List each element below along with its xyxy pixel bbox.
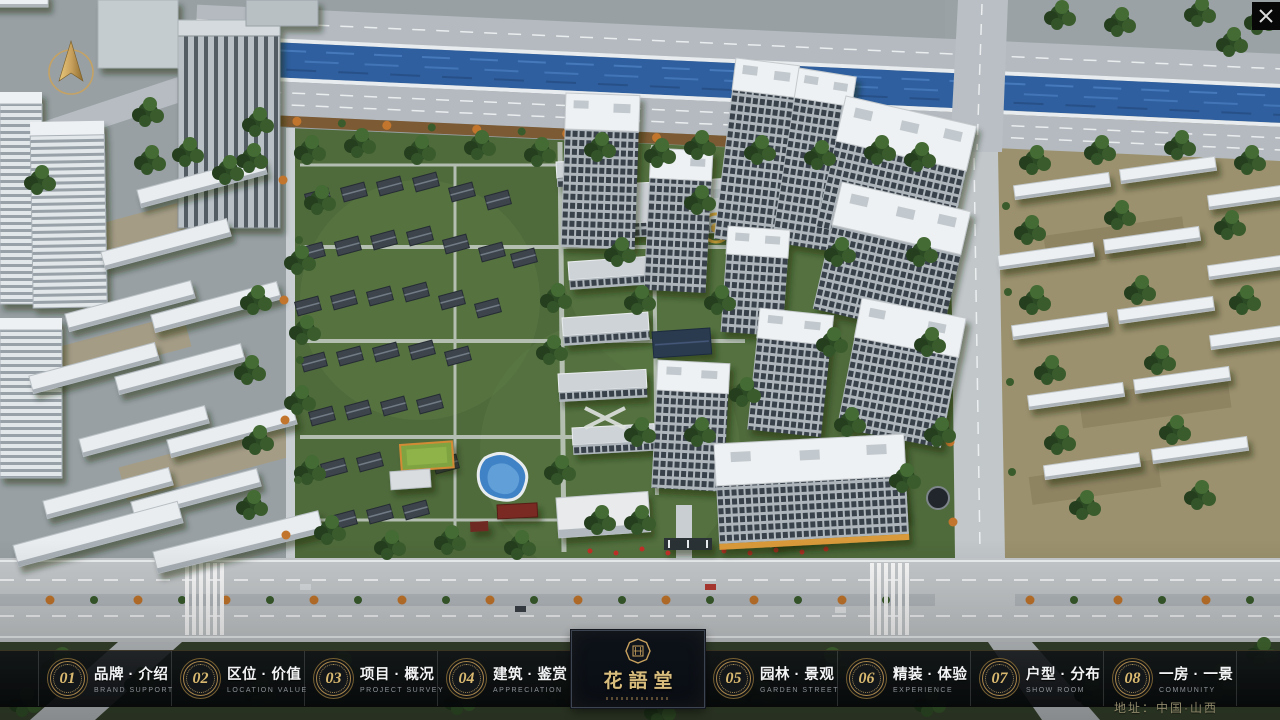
nav-number-badge: 06	[849, 661, 884, 696]
nav-item-floorplan-distribution[interactable]: 07 户型 · 分布SHOW ROOM	[971, 651, 1104, 706]
nav-number: 05	[726, 671, 742, 687]
nav-label: 品牌 · 介绍	[94, 663, 171, 684]
nav-item-brand-intro[interactable]: 01 品牌 · 介绍BRAND SUPPORT	[39, 651, 172, 706]
nav-number-badge: 01	[50, 661, 85, 696]
sales-presentation-screen: 01 品牌 · 介绍BRAND SUPPORT 02 区位 · 价值LOCATI…	[0, 0, 1280, 720]
close-button[interactable]	[1252, 2, 1280, 30]
project-logo-panel[interactable]: 花語堂	[571, 630, 705, 708]
project-logo-title: 花語堂	[597, 666, 678, 693]
nav-item-architecture-appreciation[interactable]: 04 建筑 · 鉴赏APPRECIATION	[438, 651, 571, 706]
nav-item-interior-experience[interactable]: 06 精装 · 体验EXPERIENCE	[838, 651, 971, 706]
nav-number: 03	[326, 671, 342, 687]
close-icon	[1259, 9, 1273, 23]
nav-number: 06	[859, 671, 875, 687]
nav-item-one-room-one-view[interactable]: 08 一房 · 一景COMMUNITY	[1104, 651, 1237, 706]
compass-north-icon	[42, 36, 100, 98]
nav-label: 园林 · 景观	[760, 663, 837, 684]
nav-sublabel: COMMUNITY	[1159, 687, 1233, 694]
nav-sublabel: APPRECIATION	[493, 687, 567, 694]
nav-item-project-overview[interactable]: 03 项目 · 概况PROJECT SURVEY	[305, 651, 438, 706]
nav-sublabel: SHOW ROOM	[1026, 687, 1100, 694]
nav-number: 07	[992, 671, 1008, 687]
nav-item-landscape-garden[interactable]: 05 园林 · 景观GARDEN STREET	[705, 651, 838, 706]
nav-number-badge: 03	[316, 661, 351, 696]
nav-label: 区位 · 价值	[227, 663, 304, 684]
site-aerial-render	[0, 0, 1280, 720]
nav-sublabel: BRAND SUPPORT	[94, 687, 171, 694]
nav-item-location-value[interactable]: 02 区位 · 价值LOCATION VALUE	[172, 651, 305, 706]
nav-number-badge: 02	[183, 661, 218, 696]
nav-sublabel: GARDEN STREET	[760, 687, 837, 694]
address-text: 地址：中国·山西	[1114, 699, 1218, 716]
nav-label: 一房 · 一景	[1159, 663, 1233, 684]
nav-sublabel: PROJECT SURVEY	[360, 687, 437, 694]
nav-sublabel: EXPERIENCE	[893, 687, 967, 694]
nav-number: 08	[1125, 671, 1141, 687]
nav-sublabel: LOCATION VALUE	[227, 687, 304, 694]
nav-label: 建筑 · 鉴赏	[493, 663, 567, 684]
nav-number: 01	[60, 671, 76, 687]
nav-number: 02	[193, 671, 209, 687]
nav-number-badge: 04	[449, 661, 484, 696]
brand-seal-icon	[625, 638, 651, 664]
navbar-right-spacer	[1237, 651, 1280, 706]
nav-number-badge: 08	[1115, 661, 1150, 696]
logo-subtitle-line	[606, 697, 670, 700]
nav-label: 户型 · 分布	[1026, 663, 1100, 684]
nav-number-badge: 07	[982, 661, 1017, 696]
nav-number: 04	[459, 671, 475, 687]
nav-label: 项目 · 概况	[360, 663, 437, 684]
main-navigation-bar: 01 品牌 · 介绍BRAND SUPPORT 02 区位 · 价值LOCATI…	[0, 650, 1280, 707]
nav-number-badge: 05	[716, 661, 751, 696]
navbar-left-spacer	[0, 651, 39, 706]
nav-label: 精装 · 体验	[893, 663, 967, 684]
